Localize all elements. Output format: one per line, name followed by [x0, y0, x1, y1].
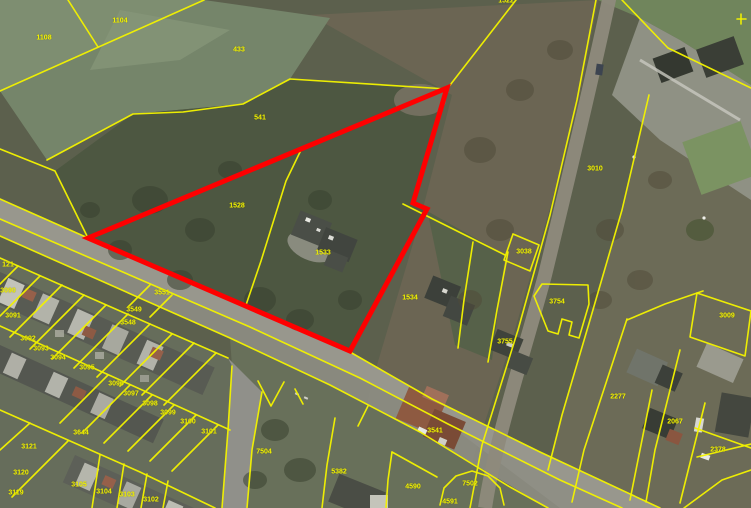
aerial-photo [0, 0, 751, 508]
map-viewport[interactable]: 1104110843354115221528153315343010303837… [0, 0, 751, 508]
map-canvas[interactable] [0, 0, 751, 508]
